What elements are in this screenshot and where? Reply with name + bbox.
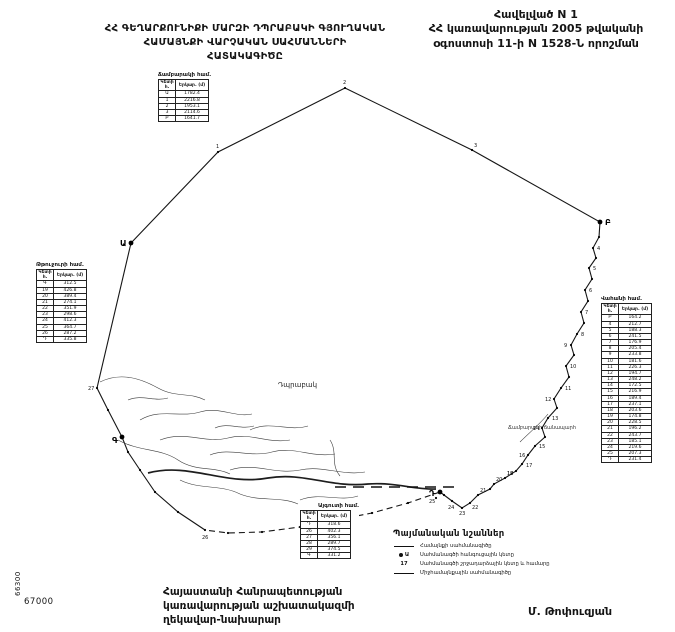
boundary-point-dot xyxy=(560,387,562,389)
table-caption: Վահանի համ. xyxy=(601,296,652,302)
boundary-point-label: 9 xyxy=(564,343,567,349)
boundary-point-dot xyxy=(527,454,529,456)
boundary-point-dot xyxy=(565,365,567,367)
boundary-point-label: 14 xyxy=(533,426,539,432)
legend: Պայմանական նշաններ Համայնքի սահմանագիծը … xyxy=(393,529,583,579)
boundary-point-dot xyxy=(547,417,549,419)
boundary-point-label: 15 xyxy=(539,444,545,450)
boundary-point-label: 4 xyxy=(597,246,600,252)
boundary-point-label: 6 xyxy=(589,288,592,294)
legend-item-label: Սահմանագծի շրջադարձային կետը և համարը xyxy=(420,561,550,567)
boundary-point-dot xyxy=(556,407,558,409)
settlement-label: Դպրաբակ xyxy=(278,381,317,389)
boundary-point-dot xyxy=(451,500,453,502)
boundary-line-icon xyxy=(393,546,415,547)
thin-line-icon xyxy=(393,573,415,574)
legend-item: 17 Սահմանագծի շրջադարձային կետը և համարը xyxy=(393,561,583,567)
boundary-point-label: 24 xyxy=(448,505,454,511)
col-header: Երկար. (մ) xyxy=(176,80,209,91)
boundary-point-dot xyxy=(595,257,597,259)
boundary-point-label: Դ xyxy=(429,489,435,498)
boundary-point-dot xyxy=(591,278,593,280)
boundary-point-label: 2 xyxy=(343,80,346,86)
boundary-point-dot xyxy=(521,463,523,465)
boundary-point-dot xyxy=(227,532,229,534)
table-body: Դ318.626402.327356.128289.729374.5Գ331.2 xyxy=(301,522,351,559)
boundary-point-dot xyxy=(541,427,543,429)
table-body: Ա1782.412216.821953.132114.6Բ1641.7 xyxy=(159,91,209,122)
boundary-point-dot xyxy=(469,502,471,504)
node-point-icon: Ա xyxy=(393,552,415,558)
boundary-point-dot xyxy=(587,300,589,302)
signatory-line: ղեկավար-նախարար xyxy=(163,614,355,628)
boundary-point-label: 16 xyxy=(519,453,525,459)
boundary-point-label: 20 xyxy=(496,477,502,483)
boundary-point-dot xyxy=(576,333,578,335)
legend-item-label: Սահմանագծի հանգուցային կետը xyxy=(420,552,514,558)
boundary-line-west xyxy=(97,243,205,530)
boundary-point-dot xyxy=(493,483,495,485)
boundary-point-dot xyxy=(217,151,219,153)
boundary-point-label: 23 xyxy=(459,511,465,517)
boundary-point-dot xyxy=(371,512,373,514)
boundary-point-dot xyxy=(96,387,98,389)
boundary-point-dot xyxy=(588,267,590,269)
map-sheet: ՀՀ ԳԵՂԱՐՔՈՒՆԻՔԻ ՄԱՐԶԻ ԴՊՐԱԲԱԿԻ ԳՅՈՒՂԱԿԱՆ… xyxy=(0,0,675,632)
coord-table-south: Այգուտի համ. Կետի հ. Երկար. (մ) Դ318.626… xyxy=(300,503,359,559)
boundary-point-dot xyxy=(107,409,109,411)
col-header: Երկար. (մ) xyxy=(318,511,351,522)
boundary-point-dot xyxy=(477,494,479,496)
coord-table-north: Ճամբարակի համ. Կետի հ. Երկար. (մ) Ա1782.… xyxy=(158,72,211,122)
table-row: Դ335.8 xyxy=(37,336,87,342)
boundary-point-dot xyxy=(592,247,594,249)
boundary-point-dot xyxy=(583,322,585,324)
boundary-point-dot xyxy=(407,502,409,504)
boundary-point-label: 10 xyxy=(570,364,576,370)
boundary-point-label: 27 xyxy=(88,386,94,392)
signatory-title: Հայաստանի Հանրապետության կառավարության ա… xyxy=(163,586,355,628)
col-header: Կետի հ. xyxy=(301,511,318,522)
legend-item-label: Համայնքի սահմանագիծը xyxy=(420,543,492,549)
signatory-line: Հայաստանի Հանրապետության xyxy=(163,586,355,600)
boundary-point-label: 5 xyxy=(593,266,596,272)
boundary-point-dot xyxy=(553,398,555,400)
col-header: Երկար. (մ) xyxy=(619,304,652,315)
boundary-point-label: 25 xyxy=(429,499,435,505)
boundary-point-dot xyxy=(471,149,473,151)
boundary-node-dot xyxy=(598,220,603,225)
boundary-point-label: 7 xyxy=(585,310,588,316)
coord-table-east: Վահանի համ. Կետի հ. Երկար. (մ) Բ164.2421… xyxy=(601,296,652,463)
signature-name: Մ. Թոփուզյան xyxy=(528,605,612,618)
boundary-node-dot xyxy=(438,490,443,495)
boundary-point-label: 8 xyxy=(581,332,584,338)
boundary-line-solid xyxy=(131,88,600,508)
boundary-point-dot xyxy=(504,477,506,479)
boundary-point-label: 3 xyxy=(474,143,477,149)
boundary-point-label: 1 xyxy=(216,144,219,150)
boundary-point-label: 13 xyxy=(552,416,558,422)
boundary-point-dot xyxy=(261,531,263,533)
boundary-point-label: 12 xyxy=(545,397,551,403)
boundary-point-dot xyxy=(580,311,582,313)
legend-item: Համայնքի սահմանագիծը xyxy=(393,543,583,549)
boundary-point-label: 11 xyxy=(565,386,571,392)
boundary-point-label: 21 xyxy=(480,488,486,494)
boundary-point-dot xyxy=(139,469,141,471)
boundary-point-dot xyxy=(489,488,491,490)
stream-lines xyxy=(100,377,365,504)
table-row: Գ331.2 xyxy=(301,553,351,559)
boundary-point-label: Ա xyxy=(120,239,127,248)
legend-item: Միջհամայնքային սահմանագիծը xyxy=(393,570,583,576)
col-header: Երկար. (մ) xyxy=(54,270,87,281)
boundary-point-dot xyxy=(461,507,463,509)
legend-title: Պայմանական նշաններ xyxy=(393,529,583,539)
boundary-point-label: 22 xyxy=(472,505,478,511)
boundary-node-dot xyxy=(120,435,125,440)
boundary-point-label: 19 xyxy=(507,471,513,477)
boundary-point-label: 17 xyxy=(526,463,532,469)
boundary-point-label: Բ xyxy=(605,218,611,227)
boundary-point-label: 26 xyxy=(202,535,208,541)
grid-coordinate-x: 67000 xyxy=(24,597,54,607)
boundary-point-dot xyxy=(127,451,129,453)
boundary-point-dot xyxy=(598,236,600,238)
table-caption: Թթուջուրի համ. xyxy=(36,262,87,268)
boundary-point-dot xyxy=(584,289,586,291)
signatory-line: կառավարության աշխատակազմի xyxy=(163,600,355,614)
boundary-point-dot xyxy=(534,445,536,447)
turn-point-icon: 17 xyxy=(393,561,415,567)
boundary-point-dot xyxy=(344,87,346,89)
legend-item-label: Միջհամայնքային սահմանագիծը xyxy=(420,570,511,576)
boundary-points: ԱԲԳԴ123456789101112131415161718192021222… xyxy=(88,80,611,541)
boundary-point-dot xyxy=(544,436,546,438)
boundary-point-dot xyxy=(573,354,575,356)
table-body: Բ164.24212.75188.36241.57176.98205.49233… xyxy=(602,315,652,463)
boundary-point-dot xyxy=(204,529,206,531)
boundary-point-label: Գ xyxy=(112,436,118,445)
boundary-point-dot xyxy=(515,470,517,472)
legend-symbol-text: Ա xyxy=(405,552,409,558)
coord-table-west: Թթուջուրի համ. Կետի հ. Երկար. (մ) Գ312.5… xyxy=(36,262,87,343)
boundary-node-dot xyxy=(129,241,134,246)
col-header: Կետի հ. xyxy=(37,270,54,281)
boundary-point-dot xyxy=(570,344,572,346)
table-row: Բ1641.7 xyxy=(159,116,209,122)
table-caption: Ճամբարակի համ. xyxy=(158,72,211,78)
boundary-point-dot xyxy=(568,376,570,378)
col-header: Կետի հ. xyxy=(602,304,619,315)
boundary-point-dot xyxy=(177,511,179,513)
legend-symbol-text: 17 xyxy=(400,561,407,567)
legend-item: Ա Սահմանագծի հանգուցային կետը xyxy=(393,552,583,558)
table-row: Դ231.4 xyxy=(602,457,652,463)
boundary-point-dot xyxy=(154,491,156,493)
boundary-point-dot xyxy=(443,494,445,496)
table-body: Գ312.519426.820389.421274.122351.923298.… xyxy=(37,281,87,343)
table-caption: Այգուտի համ. xyxy=(318,503,359,509)
grid-coordinate-y: 66300 xyxy=(14,571,22,596)
col-header: Կետի հ. xyxy=(159,80,176,91)
